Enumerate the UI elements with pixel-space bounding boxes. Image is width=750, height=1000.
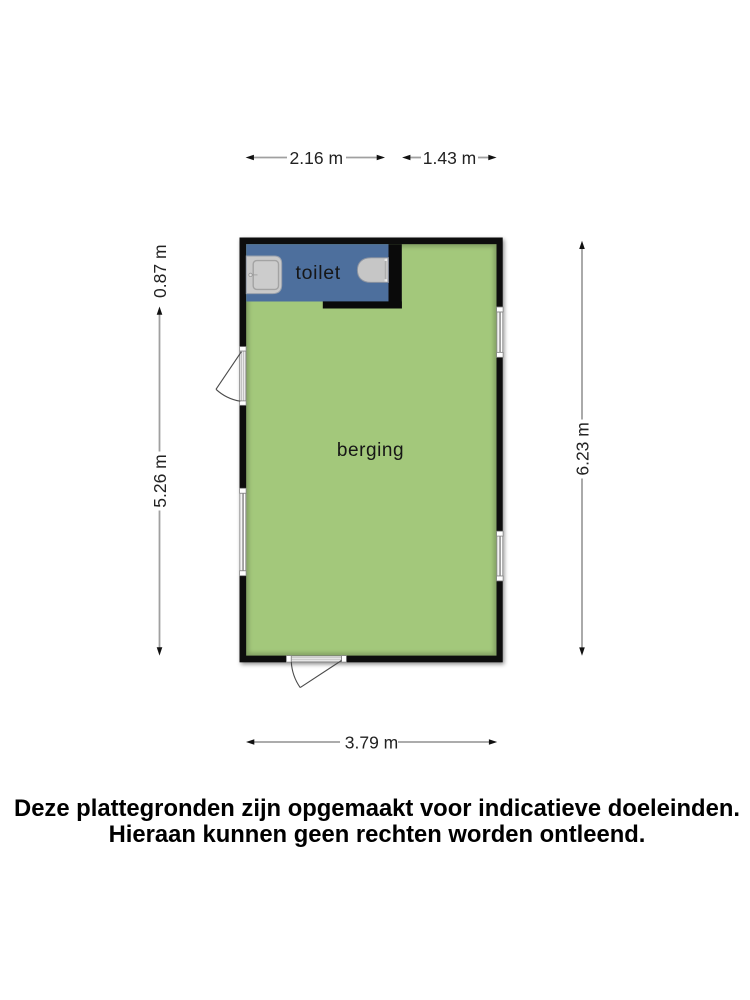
svg-text:5.26 m: 5.26 m [150, 454, 170, 508]
svg-text:3.79 m: 3.79 m [345, 732, 399, 752]
svg-text:Hieraan kunnen geen rechten wo: Hieraan kunnen geen rechten worden ontle… [109, 821, 646, 848]
svg-text:toilet: toilet [296, 262, 341, 284]
svg-text:6.23 m: 6.23 m [572, 422, 592, 476]
svg-text:2.16 m: 2.16 m [290, 148, 344, 168]
svg-text:berging: berging [337, 440, 404, 461]
svg-text:0.87 m: 0.87 m [150, 244, 170, 298]
svg-text:1.43 m: 1.43 m [423, 148, 477, 168]
svg-text:Deze plattegronden zijn opgema: Deze plattegronden zijn opgemaakt voor i… [14, 795, 740, 822]
